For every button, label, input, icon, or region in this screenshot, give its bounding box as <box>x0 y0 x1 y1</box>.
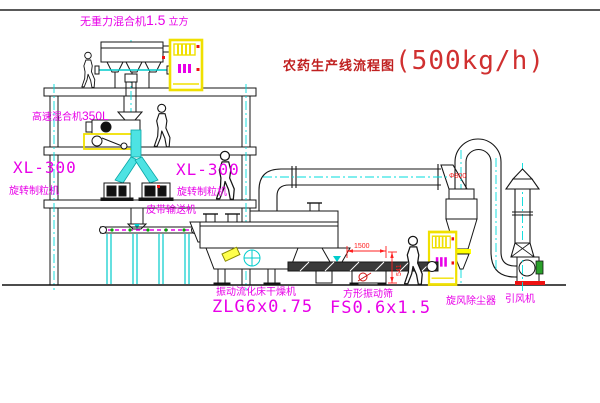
worker-figure <box>405 236 423 284</box>
control-cabinet-top <box>170 40 202 90</box>
label-granulator-right-name: 旋转制粒机 <box>177 188 227 198</box>
title-text: 农药生产线流程图 <box>283 46 395 74</box>
label-sieve-model: FS0.6x1.5 <box>330 300 431 317</box>
induced-draft-fan <box>515 257 545 285</box>
label-cyclone: 旋风除尘器 <box>446 297 496 307</box>
label-belt-conveyor: 皮带输送机 <box>146 206 196 216</box>
label-high-speed-mixer: 高速混合机350L <box>32 110 109 123</box>
y-chute <box>115 157 158 183</box>
worker-figure <box>82 52 95 87</box>
label-gravity-mixer: 无重力混合机1.5 立方 <box>80 13 189 28</box>
label-fan: 引风机 <box>505 295 535 305</box>
dim-sieve-height: 541 <box>396 264 403 276</box>
belt-conveyor <box>100 227 199 285</box>
diagram-canvas: 农药生产线流程图 (500kg/h) 无重力混合机1.5 立方 高速混合机350… <box>0 0 600 403</box>
worker-figure <box>154 104 170 147</box>
title-capacity: (500kg/h) <box>395 46 545 76</box>
label-granulator-left-name: 旋转制粒机 <box>9 187 59 197</box>
dim-sieve-width: 1500 <box>354 243 370 250</box>
fluid-bed-dryer <box>190 203 350 285</box>
diagram-title: 农药生产线流程图 (500kg/h) <box>283 46 545 76</box>
granulator-right <box>139 183 173 201</box>
dim-cyclone-diameter: Φ800 <box>449 173 466 180</box>
label-dryer-model: ZLG6x0.75 <box>212 299 313 316</box>
label-granulator-right-model: XL-300 <box>176 162 240 178</box>
control-cabinet-right <box>429 232 456 285</box>
discharge-chute <box>128 208 146 229</box>
granulator-left <box>101 183 133 201</box>
exhaust-pipe <box>259 164 467 211</box>
label-granulator-left-model: XL-300 <box>13 160 77 176</box>
